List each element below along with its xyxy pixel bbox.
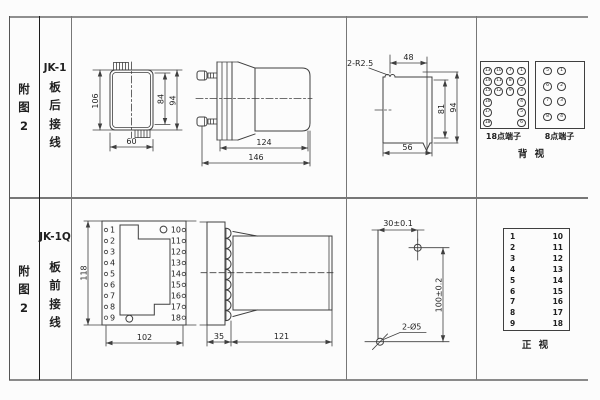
terminal-numbers-left: 12 34 56 78 9: [510, 232, 515, 330]
table-border-bottom: [9, 379, 588, 381]
cutout-outline: [383, 75, 432, 151]
terminal-numbers-right: 1011 1213 1415 1617 18: [553, 232, 563, 330]
terminal-box-18: 13 10 7 1 14 11 8 2 15 12 9 3 16 4 17 5 …: [480, 61, 529, 129]
terminal-pin: 6: [543, 82, 552, 91]
svg-text:9: 9: [110, 313, 115, 322]
mounting-hole-bottom: [126, 315, 133, 322]
svg-text:13: 13: [171, 259, 181, 268]
case-body: [255, 68, 310, 131]
mounting-hole-top: [160, 226, 167, 233]
dimension-94: 94: [169, 70, 180, 130]
svg-text:35: 35: [214, 332, 224, 341]
terminal-pin: 9: [506, 87, 515, 96]
left-terminal-column: 1 2 3 4 5 6 7 8 9: [104, 226, 115, 323]
svg-text:7: 7: [110, 292, 115, 301]
svg-text:56: 56: [402, 143, 412, 152]
terminal-pin: 3: [557, 97, 566, 106]
model-label-jk1q: JK-1Q: [38, 231, 72, 243]
svg-text:16: 16: [171, 292, 181, 301]
svg-text:94: 94: [169, 95, 178, 105]
terminal-pin: 13: [483, 67, 492, 76]
terminal-screw-top: [197, 71, 217, 80]
dimension-81: 81: [437, 80, 447, 138]
table-border-left: [9, 16, 10, 380]
terminal-bumps: [226, 228, 231, 320]
front-plate: [207, 222, 225, 325]
svg-text:15: 15: [171, 281, 181, 290]
mounting-flange: [217, 62, 255, 140]
table-border-middle: [9, 197, 588, 199]
svg-text:81: 81: [437, 104, 446, 114]
svg-text:10: 10: [171, 226, 181, 235]
terminal-block-bottom: [135, 130, 150, 138]
dimension-56: 56: [383, 143, 432, 156]
terminal-pin: 3: [517, 87, 526, 96]
jk1q-front-view: 1 2 3 4 5 6 7 8 9 10 11 12 13 14 15 16 1…: [78, 215, 196, 353]
svg-text:2-Ø5: 2-Ø5: [402, 322, 421, 332]
terminal-pin: 4: [517, 98, 526, 107]
svg-text:84: 84: [157, 94, 166, 104]
terminal-pin: 2: [557, 82, 566, 91]
dimension-94-cutout: 94: [449, 72, 459, 143]
svg-text:94: 94: [449, 102, 458, 112]
jk1-side-view: 124 146: [195, 45, 315, 175]
jk1q-terminal-table: 12 34 56 78 9 1011 1213 1415 1617 18 正 视: [490, 222, 590, 352]
svg-text:102: 102: [137, 333, 152, 342]
svg-text:11: 11: [171, 237, 181, 246]
terminal-pin: 5: [543, 67, 552, 76]
body-contour: [120, 225, 170, 315]
terminal-pin: 18: [483, 119, 492, 128]
jk1-terminal-layouts: 13 10 7 1 14 11 8 2 15 12 9 3 16 4 17 5 …: [476, 50, 594, 162]
svg-text:124: 124: [256, 138, 271, 147]
front-view-label: 正 视: [490, 337, 582, 351]
terminal-pin: 2: [517, 77, 526, 86]
terminal-pin: 7: [543, 97, 552, 106]
jk1q-side-view: 35 121: [200, 215, 340, 353]
terminal-box-8: 5 1 6 2 7 3 8 4: [535, 61, 585, 129]
svg-text:100±0.2: 100±0.2: [435, 278, 444, 313]
svg-text:48: 48: [403, 53, 413, 62]
terminal-pin: 10: [494, 67, 503, 76]
jk1q-drill-plan: 30±0.1 100±0.2 2-Ø5: [365, 215, 470, 353]
svg-text:146: 146: [248, 153, 263, 162]
rear-view-label: 背 视: [476, 146, 588, 160]
hole-note: 2-Ø5: [384, 322, 427, 340]
terminal-pin: 8: [543, 113, 552, 122]
svg-text:14: 14: [171, 270, 181, 279]
svg-text:12: 12: [171, 248, 181, 257]
wiring-label-row2: 板 前 接 线: [39, 258, 71, 332]
terminal-pin: 8: [506, 77, 515, 86]
terminal-box-18-label: 18点端子: [476, 131, 531, 142]
terminal-pin: 1: [557, 67, 566, 76]
terminal-screw-bottom: [197, 117, 217, 126]
terminal-table-box: 12 34 56 78 9 1011 1213 1415 1617 18: [503, 228, 570, 331]
dimension-121: 121: [231, 310, 332, 346]
svg-text:5: 5: [110, 270, 115, 279]
terminal-pin: 12: [494, 87, 503, 96]
model-label-jk1: JK-1: [39, 62, 71, 74]
terminal-box-8-label: 8点端子: [532, 131, 587, 142]
svg-text:106: 106: [91, 93, 100, 108]
terminal-pin: 16: [483, 98, 492, 107]
dimension-48: 48: [390, 53, 427, 73]
svg-text:2: 2: [110, 237, 115, 246]
terminal-pin: 15: [483, 87, 492, 96]
svg-text:8: 8: [110, 303, 115, 312]
dimension-30: 30±0.1: [372, 219, 424, 241]
svg-text:17: 17: [171, 303, 181, 312]
svg-text:1: 1: [110, 226, 115, 235]
dimension-106: 106: [91, 70, 102, 130]
terminal-pin: 6: [517, 119, 526, 128]
svg-text:30±0.1: 30±0.1: [383, 219, 413, 228]
terminal-pin: 17: [483, 108, 492, 117]
terminal-pin: 14: [483, 77, 492, 86]
svg-text:60: 60: [126, 137, 136, 146]
svg-text:18: 18: [171, 313, 181, 322]
figure-sheet: 附 图 2 JK-1 板 后 接 线 附 图 2 JK-1Q 板 前 接 线: [0, 0, 600, 400]
dimension-102: 102: [106, 326, 183, 346]
svg-text:2-R2.5: 2-R2.5: [347, 59, 373, 68]
terminal-pin: 1: [517, 67, 526, 76]
table-border-top: [9, 16, 588, 18]
wiring-label-row1: 板 后 接 线: [39, 78, 71, 152]
jk1-panel-cutout: 2-R2.5 48 81 94 56: [345, 50, 470, 162]
dimension-124: 124: [220, 131, 308, 151]
radius-note: 2-R2.5: [347, 59, 388, 75]
jk1-front-view: 106 84 94 60: [75, 45, 193, 180]
terminal-pin: 7: [506, 67, 515, 76]
right-terminal-column: 10 11 12 13 14 15 16 17 18: [171, 226, 186, 323]
terminal-pin: 5: [517, 108, 526, 117]
svg-text:121: 121: [274, 332, 289, 341]
svg-text:3: 3: [110, 248, 115, 257]
fig-label-row1: 附 图 2: [9, 80, 39, 135]
svg-text:118: 118: [80, 265, 89, 280]
terminal-pin: 11: [494, 77, 503, 86]
terminal-block-top: [114, 63, 129, 71]
terminal-pin: 4: [557, 113, 566, 122]
fig-label-row2: 附 图 2: [9, 262, 39, 317]
svg-text:6: 6: [110, 281, 115, 290]
dimension-118: 118: [80, 221, 103, 325]
svg-text:4: 4: [110, 259, 115, 268]
dimension-100: 100±0.2: [435, 248, 446, 342]
